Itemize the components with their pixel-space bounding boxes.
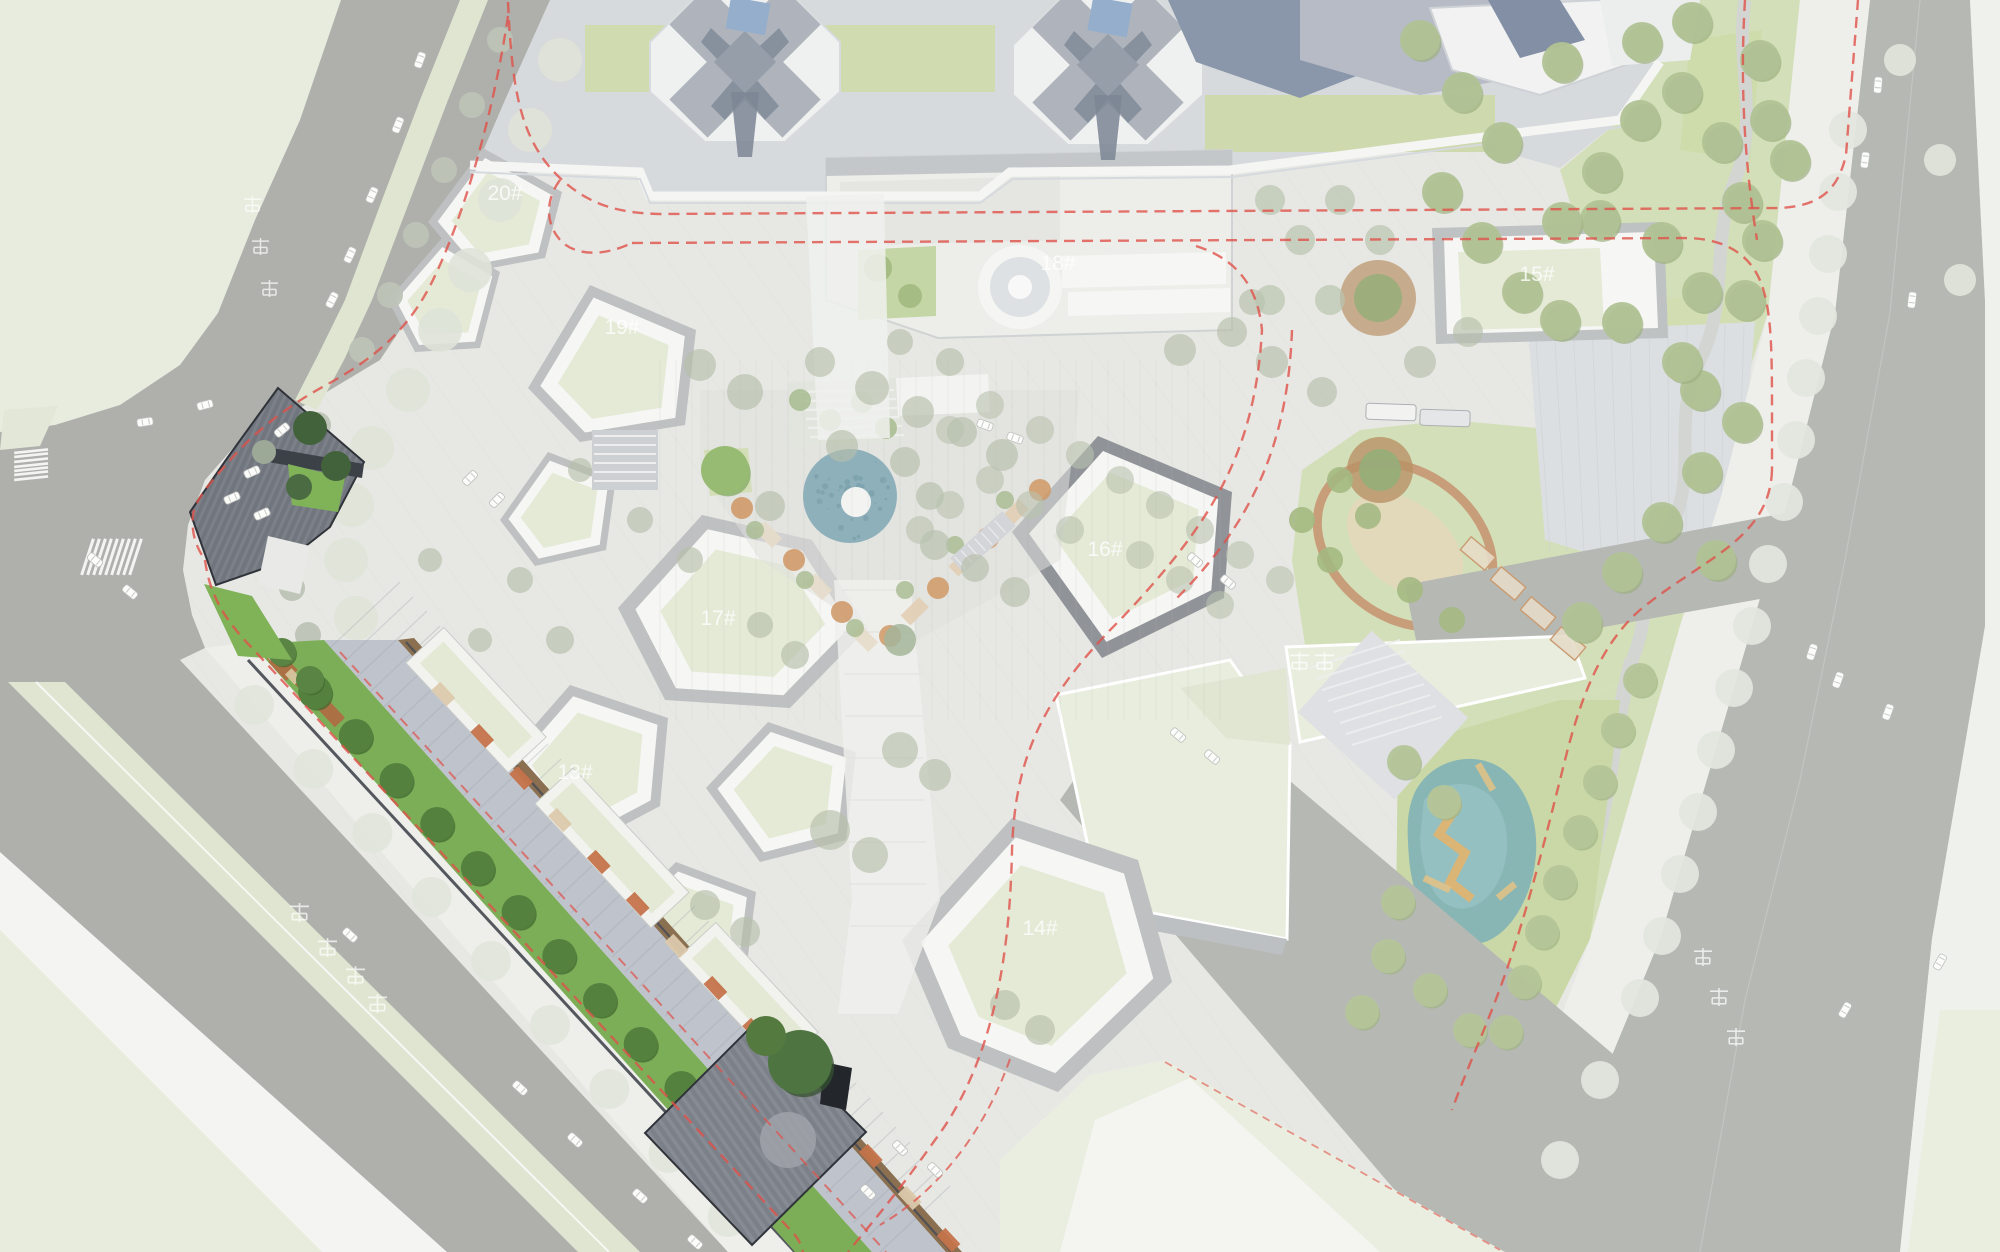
svg-text:18#: 18# (1040, 252, 1075, 275)
svg-text:20#: 20# (487, 182, 522, 205)
svg-text:13#: 13# (557, 761, 592, 784)
svg-text:15#: 15# (1519, 263, 1554, 286)
svg-text:17#: 17# (700, 607, 735, 630)
svg-text:19#: 19# (604, 316, 639, 339)
svg-text:16#: 16# (1087, 538, 1122, 561)
svg-text:14#: 14# (1022, 917, 1057, 940)
